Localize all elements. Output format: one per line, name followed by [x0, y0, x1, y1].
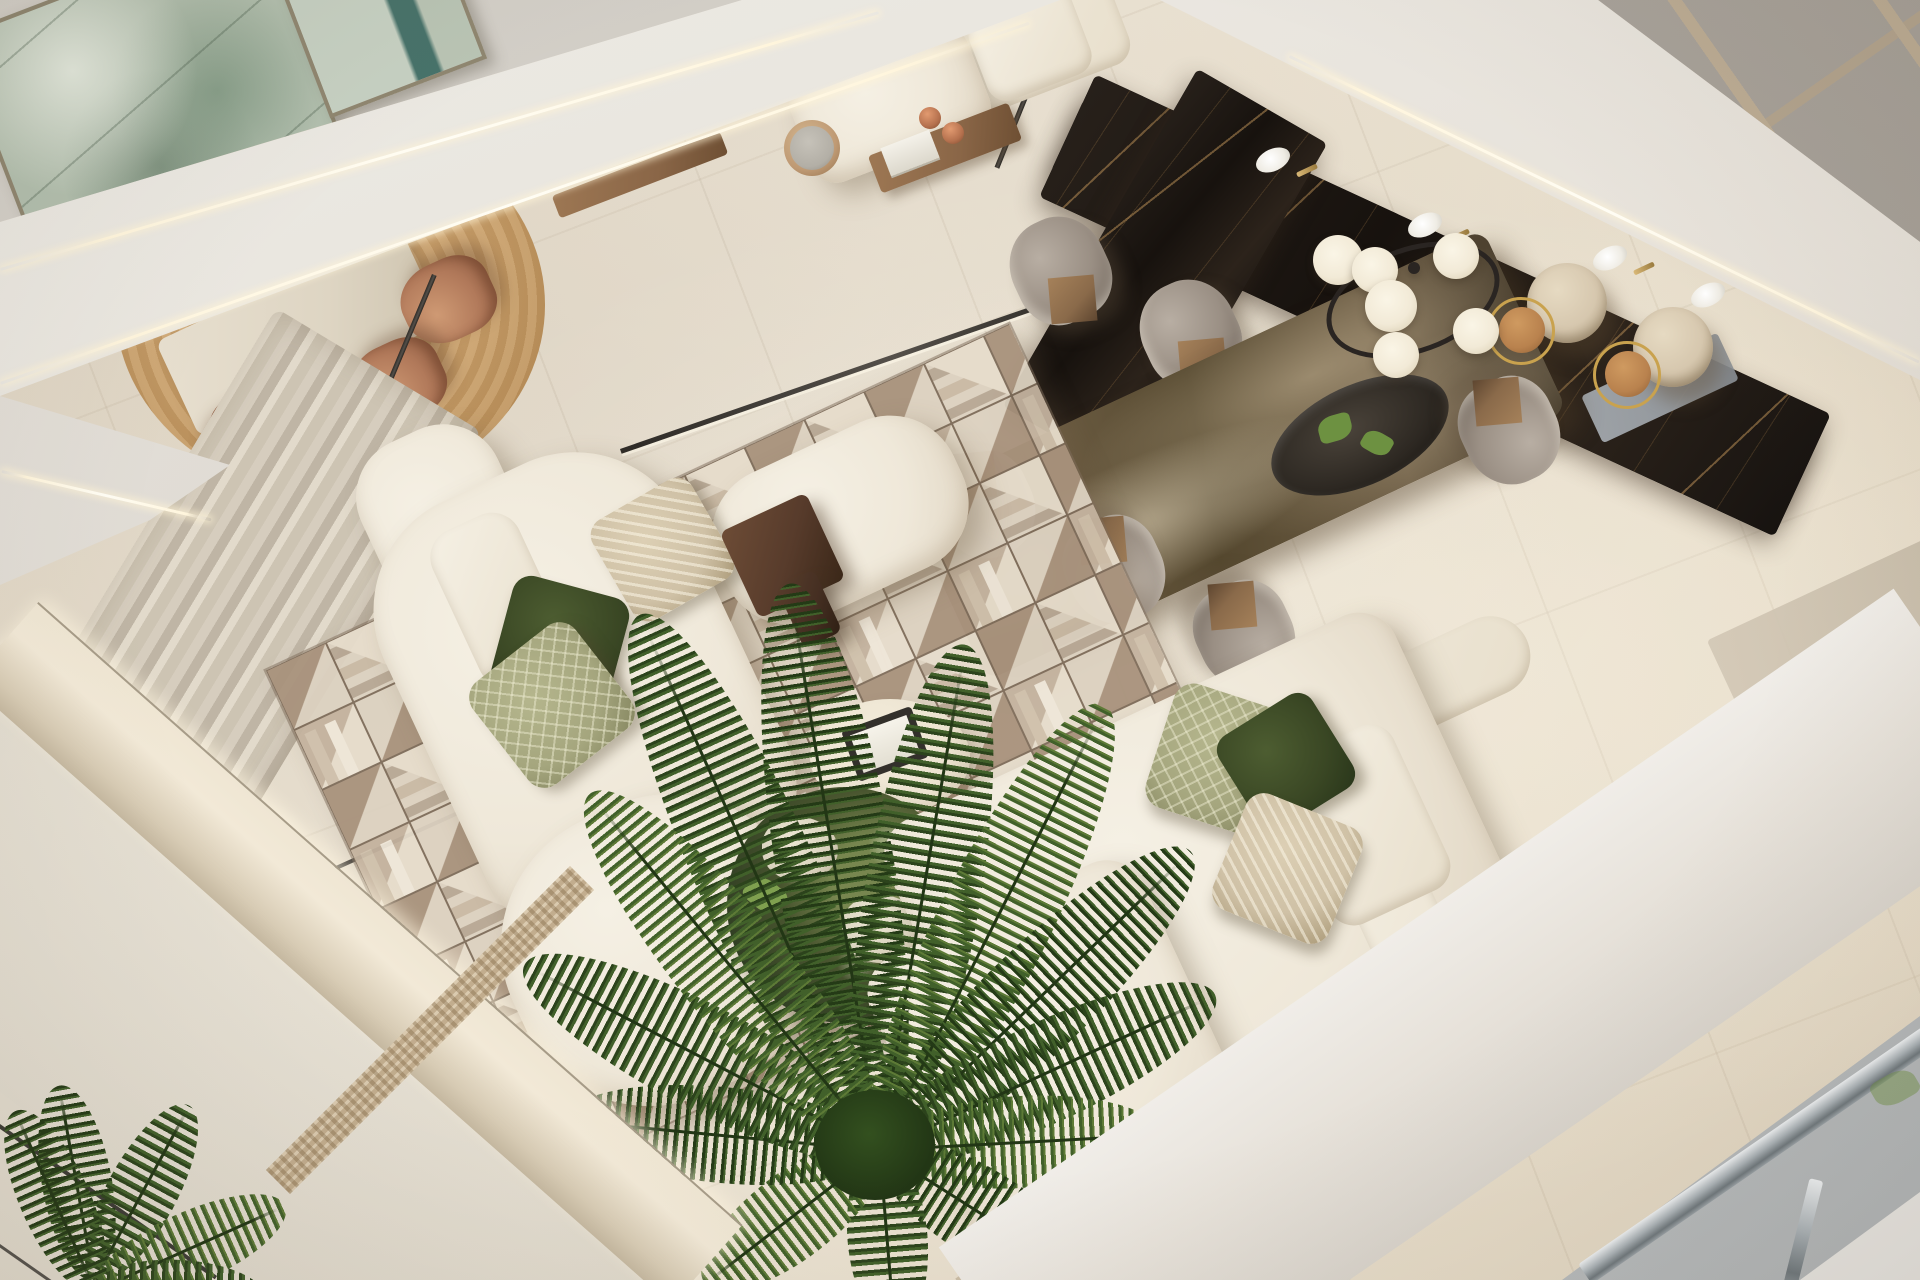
pendant-disc — [1433, 233, 1479, 279]
interior-render — [0, 0, 1920, 1280]
bar-stool — [1633, 307, 1713, 387]
pendant-disc — [1453, 308, 1499, 354]
bar-stool — [1527, 263, 1607, 343]
pendant-disc — [1373, 332, 1419, 378]
side-table-marble-top — [790, 126, 834, 170]
copper-candle-glass — [919, 107, 941, 129]
pendant-hub — [1408, 262, 1420, 274]
pendant-disc — [1365, 280, 1417, 332]
palm-crown — [815, 1090, 935, 1200]
copper-candle-glass — [942, 122, 964, 144]
